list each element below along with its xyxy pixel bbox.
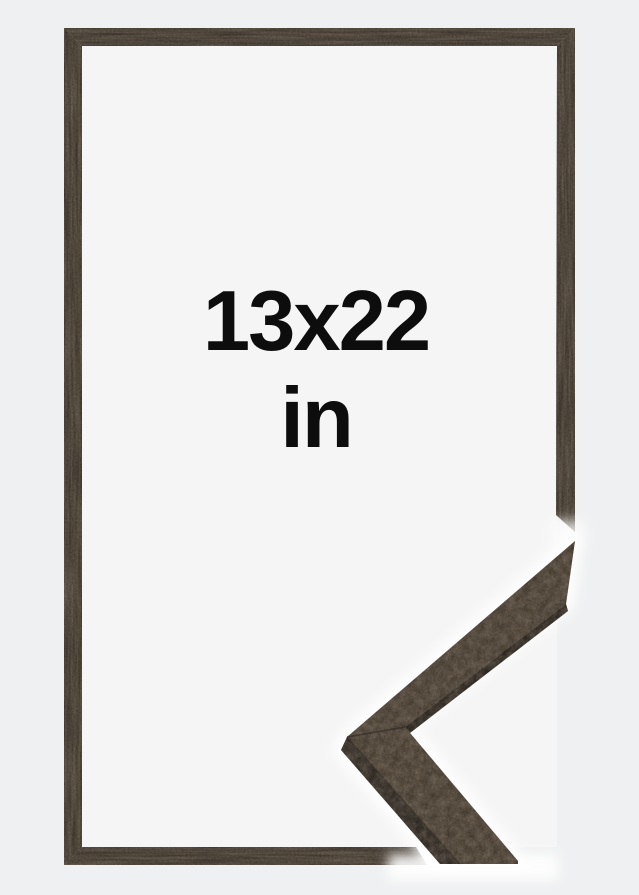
size-label-line2: in xyxy=(280,371,352,466)
frame-preview-canvas: 13x22 in xyxy=(0,0,639,895)
frame-product-image: 13x22 in xyxy=(0,0,639,895)
size-label-line1: 13x22 xyxy=(203,274,429,369)
